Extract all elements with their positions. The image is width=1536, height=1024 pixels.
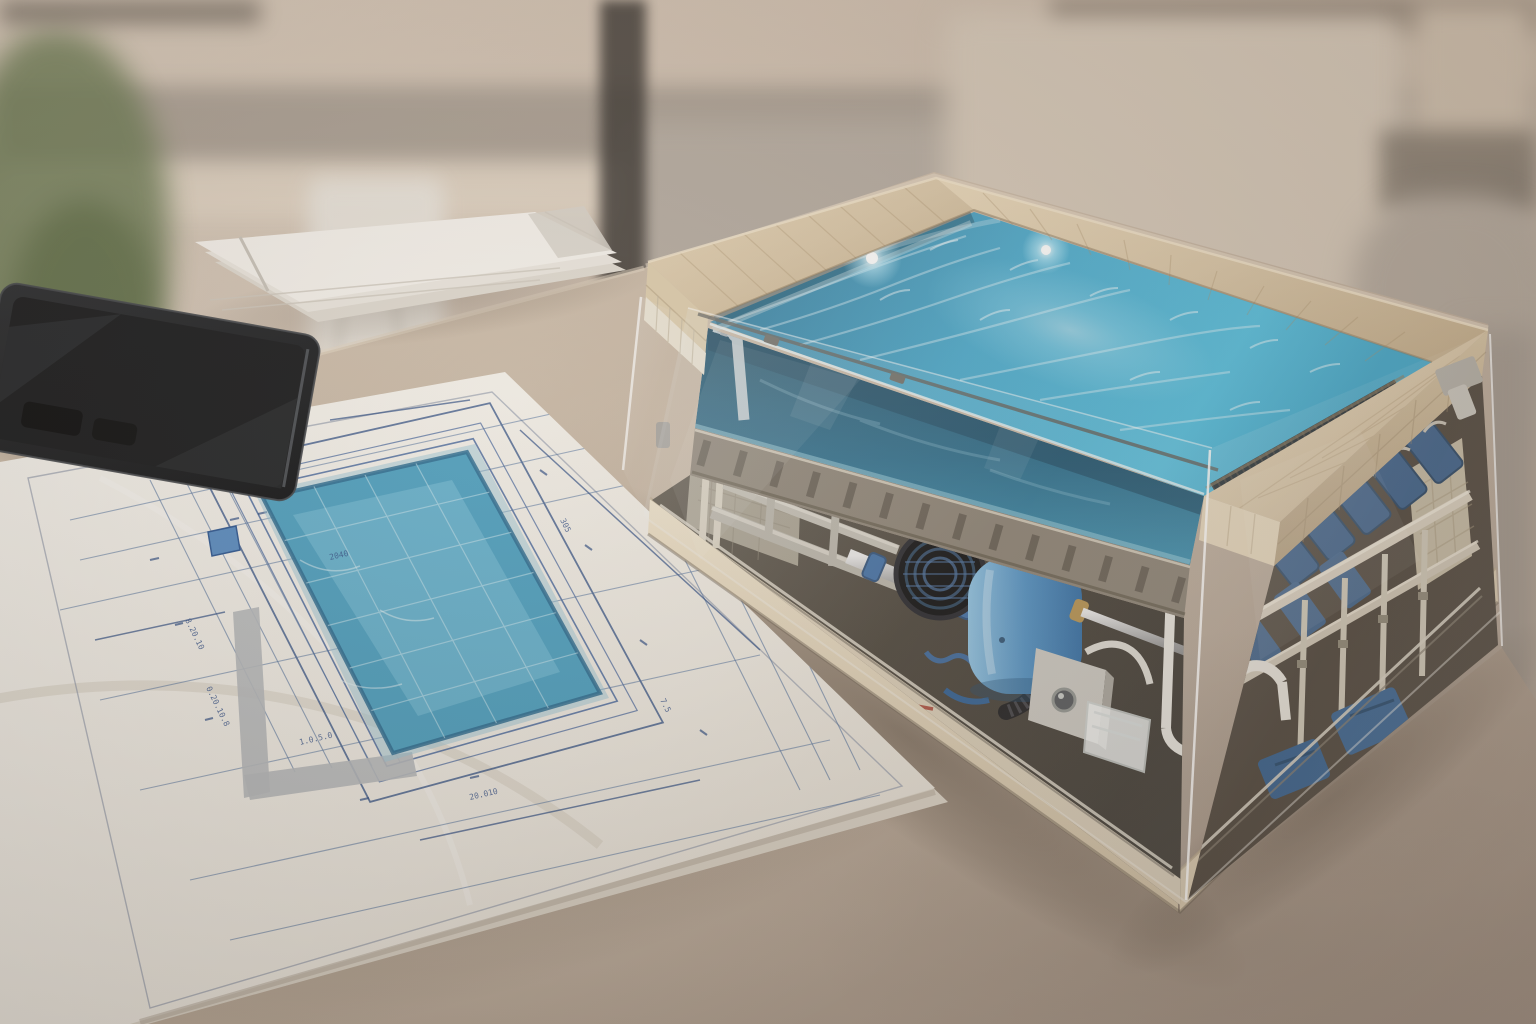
- blueprint-skimmer-square: [208, 526, 240, 556]
- scene-graphics: 0.20.10.8 8.20.10 2040 1.0.5.0 305 20.01…: [0, 0, 1536, 1024]
- photo-scene: 0.20.10.8 8.20.10 2040 1.0.5.0 305 20.01…: [0, 0, 1536, 1024]
